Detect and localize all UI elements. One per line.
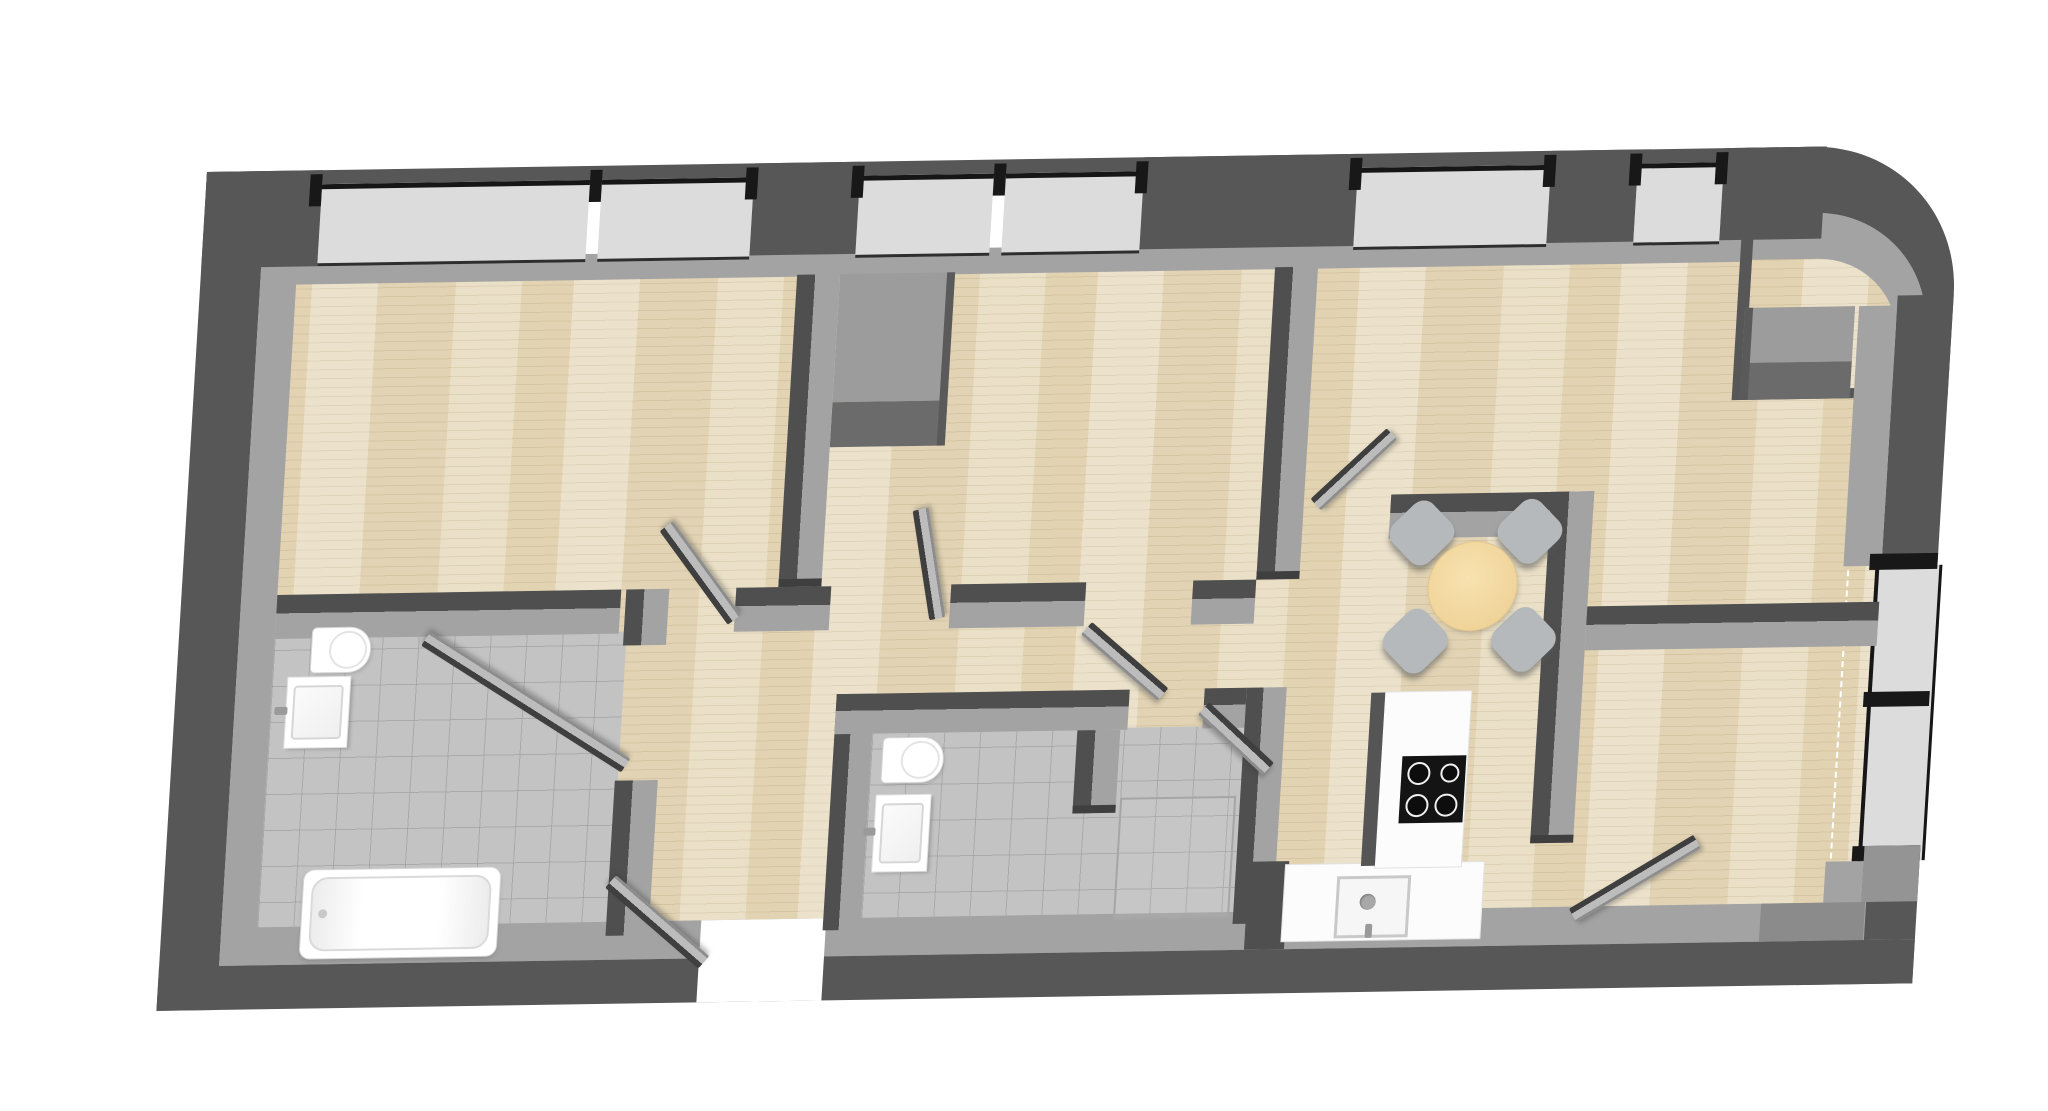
washbasin-basin-icon — [879, 803, 925, 864]
corner-block-mid — [1861, 845, 1920, 902]
bathtub — [299, 867, 500, 958]
apartment-plan — [156, 144, 1962, 1010]
faucet-icon — [863, 828, 875, 836]
bathroom-left-right-wall-upper — [623, 589, 669, 646]
window-pier-right — [1719, 147, 1827, 241]
hallway-wall-segment-d — [1191, 580, 1257, 625]
window-post-icon — [1629, 153, 1643, 185]
chimney-middle-room-face — [830, 400, 948, 447]
wall-cap — [1256, 571, 1299, 580]
burner-icon — [1440, 763, 1460, 782]
window-3a — [1353, 165, 1551, 250]
window-post-icon — [745, 167, 759, 199]
window-pier-3 — [1546, 150, 1639, 243]
hallway-wall-segment-c — [949, 582, 1087, 628]
burner-icon — [1434, 793, 1458, 816]
toilet — [311, 627, 372, 672]
window-post-icon — [589, 170, 603, 202]
toilet-bowl-icon — [900, 741, 941, 780]
window-1a — [317, 180, 590, 266]
corner-block-low — [1759, 902, 1865, 942]
toilet-bowl-icon — [328, 631, 368, 670]
faucet-icon — [274, 707, 287, 715]
washbasin-basin-icon — [291, 685, 344, 740]
wall-cap — [1072, 805, 1115, 814]
bathtub-inner-icon — [308, 875, 492, 952]
faucet-icon — [1365, 924, 1373, 938]
window-pier-1 — [749, 162, 861, 256]
room-bottom-right-top-wall — [1585, 602, 1880, 651]
chimney-living-room-top — [1742, 306, 1855, 363]
toilet — [881, 737, 944, 782]
window-2b — [1001, 171, 1144, 255]
window-2a — [855, 174, 994, 258]
chimney-middle-room-top — [832, 272, 955, 402]
floor-plan-stage — [0, 0, 2048, 1111]
window-pier-2 — [1139, 154, 1359, 249]
balcony-window-frame-top — [1869, 553, 1938, 570]
wc-top-wall-left — [834, 690, 1129, 735]
window-3b — [1633, 162, 1724, 245]
washbasin — [872, 795, 931, 872]
wc-partition-stub — [1072, 730, 1120, 814]
window-post-icon — [1543, 155, 1557, 187]
window-post-icon — [851, 166, 865, 198]
top-left-corner-wall — [201, 170, 323, 268]
chimney-living-room-face — [1740, 361, 1852, 400]
shower-outline — [1113, 796, 1236, 920]
entrance-opening — [696, 918, 826, 1002]
hallway-wall-segment-b — [734, 586, 832, 632]
cooktop — [1398, 755, 1466, 823]
window-post-icon — [993, 163, 1007, 195]
washbasin — [284, 677, 350, 748]
window-post-icon — [1349, 158, 1363, 190]
window-post-icon — [309, 174, 323, 206]
burner-icon — [1407, 762, 1431, 785]
corner-block-dark — [1796, 939, 1915, 985]
window-1b — [597, 177, 754, 261]
window-post-icon — [1135, 161, 1149, 193]
balcony-window-mullion — [1863, 691, 1930, 707]
burner-icon — [1405, 794, 1429, 817]
wall-cap — [1530, 835, 1573, 844]
window-post-icon — [1715, 152, 1729, 184]
